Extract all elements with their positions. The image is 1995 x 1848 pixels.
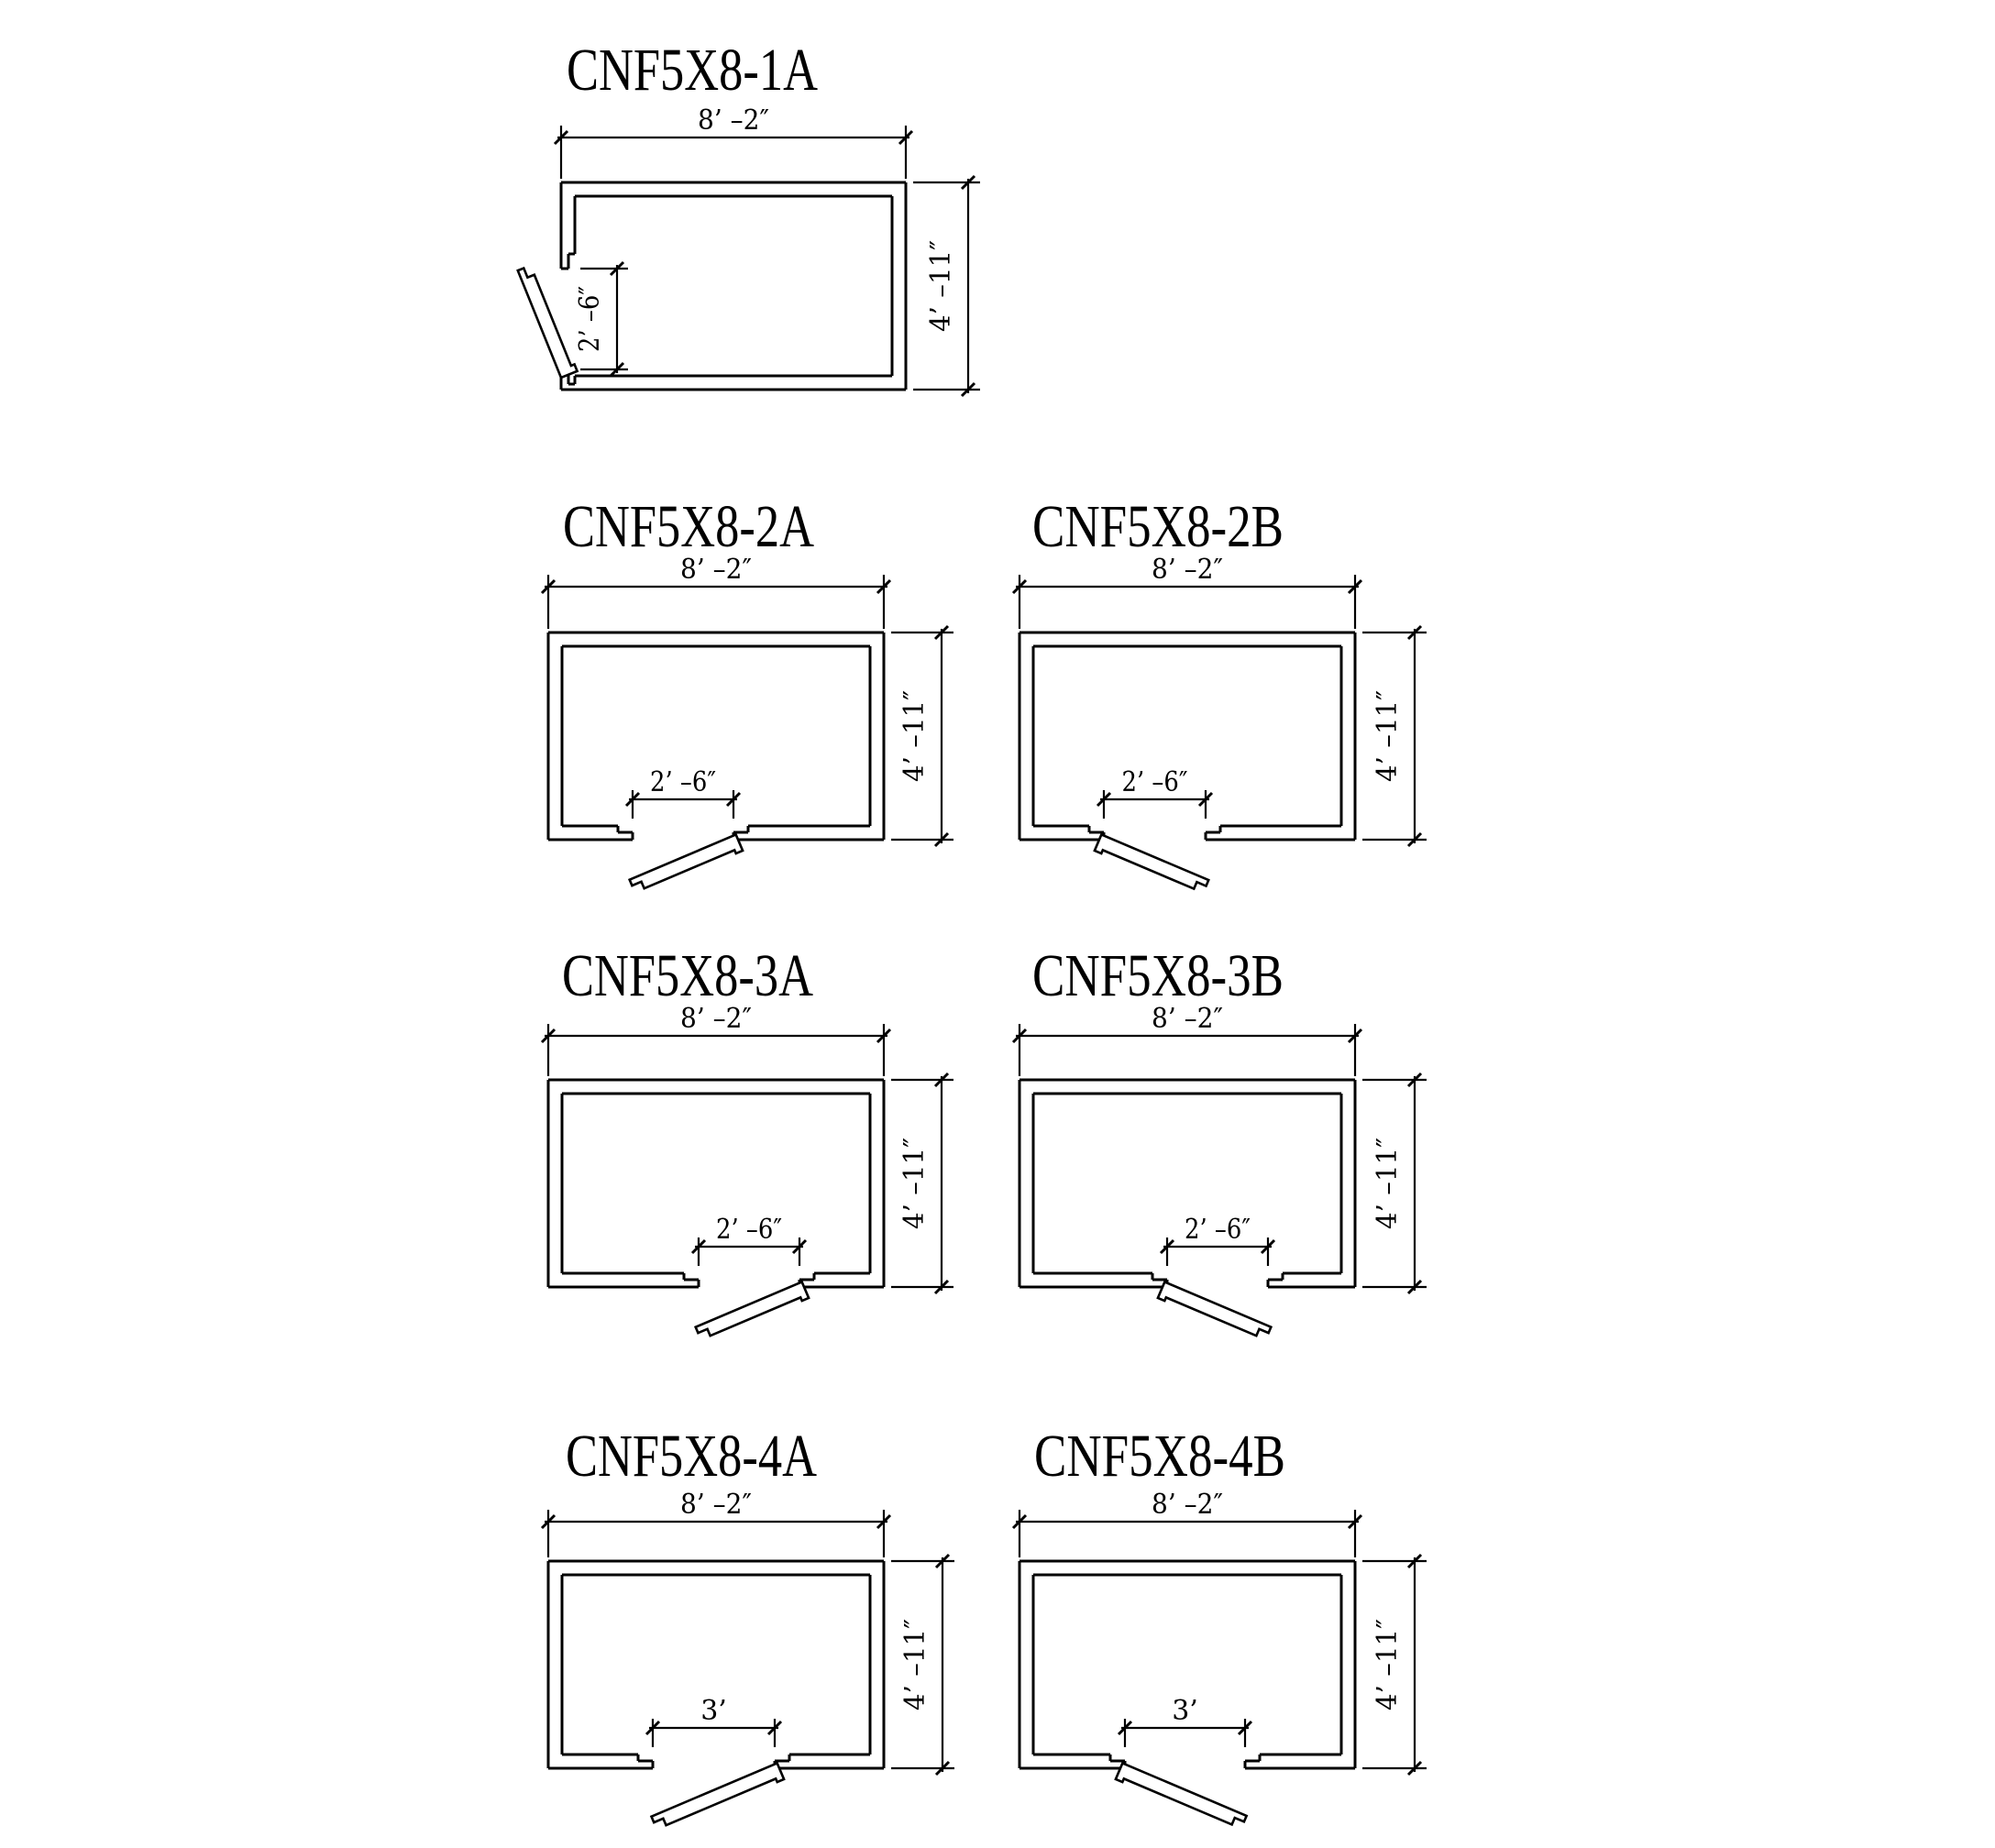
floor-plan-2b: CNF5X8-2B8’ –2″4’ –11″2’ –6″ — [1013, 493, 1427, 896]
width-dimension-label: 8’ –2″ — [1152, 554, 1223, 586]
dimension-lines — [1016, 1024, 1427, 1291]
door-leaf — [1158, 1281, 1271, 1343]
height-dimension-label: 4’ –11″ — [899, 1619, 931, 1710]
width-dimension-label: 8’ –2″ — [1152, 1003, 1223, 1035]
wall-outline — [1020, 1561, 1355, 1768]
door-width-label: 2’ –6″ — [1122, 766, 1188, 798]
dimension-arrow-ticks — [1013, 1515, 1421, 1775]
door-leaf — [1116, 1763, 1247, 1831]
floor-plan-4a: CNF5X8-4A8’ –2″4’ –11″3’ — [542, 1423, 954, 1832]
floor-plan-3b: CNF5X8-3B8’ –2″4’ –11″2’ –6″ — [1013, 942, 1427, 1343]
width-dimension-label: 8’ –2″ — [1152, 1489, 1223, 1521]
door-leaf — [518, 264, 578, 378]
wall-outline — [548, 632, 884, 840]
diagram-title: CNF5X8-2B — [1032, 493, 1284, 560]
width-dimension-label: 8’ –2″ — [680, 1003, 752, 1035]
dimension-lines — [545, 1024, 953, 1291]
height-dimension-label: 4’ –11″ — [925, 240, 957, 332]
door-width-label: 2’ –6″ — [650, 766, 716, 798]
diagram-title: CNF5X8-3B — [1032, 942, 1284, 1009]
dimension-arrow-ticks — [542, 580, 948, 846]
dimension-arrow-ticks — [1013, 580, 1421, 846]
width-dimension-label: 8’ –2″ — [698, 104, 769, 137]
height-dimension-label: 4’ –11″ — [898, 1138, 931, 1229]
diagram-title: CNF5X8-4B — [1034, 1423, 1285, 1490]
wall-outline — [561, 182, 906, 390]
door-width-label: 2’ –6″ — [716, 1214, 782, 1246]
wall-outline — [548, 1080, 884, 1287]
floor-plan-2a: CNF5X8-2A8’ –2″4’ –11″2’ –6″ — [542, 493, 953, 896]
dimension-lines — [557, 126, 980, 393]
diagram-title: CNF5X8-4A — [566, 1423, 817, 1490]
height-dimension-label: 4’ –11″ — [1372, 1138, 1404, 1229]
wall-outline — [1020, 1080, 1355, 1287]
diagram-title: CNF5X8-2A — [563, 493, 814, 560]
diagram-title: CNF5X8-1A — [567, 37, 818, 104]
dimension-arrow-ticks — [542, 1029, 948, 1293]
drawing-canvas: CNF5X8-1A8’ –2″4’ –11″2’ –6″CNF5X8-2A8’ … — [0, 0, 1995, 1848]
dimension-lines — [545, 1510, 954, 1772]
dimension-lines — [1016, 1510, 1427, 1772]
width-dimension-label: 8’ –2″ — [680, 554, 752, 586]
dimension-lines — [545, 575, 953, 843]
floor-plan-4b: CNF5X8-4B8’ –2″4’ –11″3’ — [1013, 1423, 1427, 1831]
door-leaf — [696, 1281, 809, 1343]
wall-outline — [1020, 632, 1355, 840]
door-width-label: 2’ –6″ — [574, 286, 606, 352]
diagram-title: CNF5X8-3A — [562, 942, 813, 1009]
door-leaf — [630, 834, 743, 896]
width-dimension-label: 8’ –2″ — [680, 1489, 752, 1521]
floor-plan-1a: CNF5X8-1A8’ –2″4’ –11″2’ –6″ — [518, 37, 980, 396]
door-width-label: 2’ –6″ — [1185, 1214, 1251, 1246]
door-leaf — [652, 1763, 785, 1832]
dimension-arrow-ticks — [542, 1515, 949, 1775]
height-dimension-label: 4’ –11″ — [1372, 1619, 1404, 1710]
door-width-label: 3’ — [1172, 1695, 1198, 1727]
dimension-arrow-ticks — [1013, 1029, 1421, 1293]
cad-drawing: CNF5X8-1A8’ –2″4’ –11″2’ –6″CNF5X8-2A8’ … — [0, 0, 1995, 1848]
floor-plan-3a: CNF5X8-3A8’ –2″4’ –11″2’ –6″ — [542, 942, 953, 1343]
door-leaf — [1095, 834, 1208, 896]
height-dimension-label: 4’ –11″ — [898, 690, 931, 782]
dimension-lines — [1016, 575, 1427, 843]
wall-outline — [548, 1561, 884, 1768]
door-width-label: 3’ — [700, 1695, 727, 1727]
height-dimension-label: 4’ –11″ — [1372, 690, 1404, 782]
